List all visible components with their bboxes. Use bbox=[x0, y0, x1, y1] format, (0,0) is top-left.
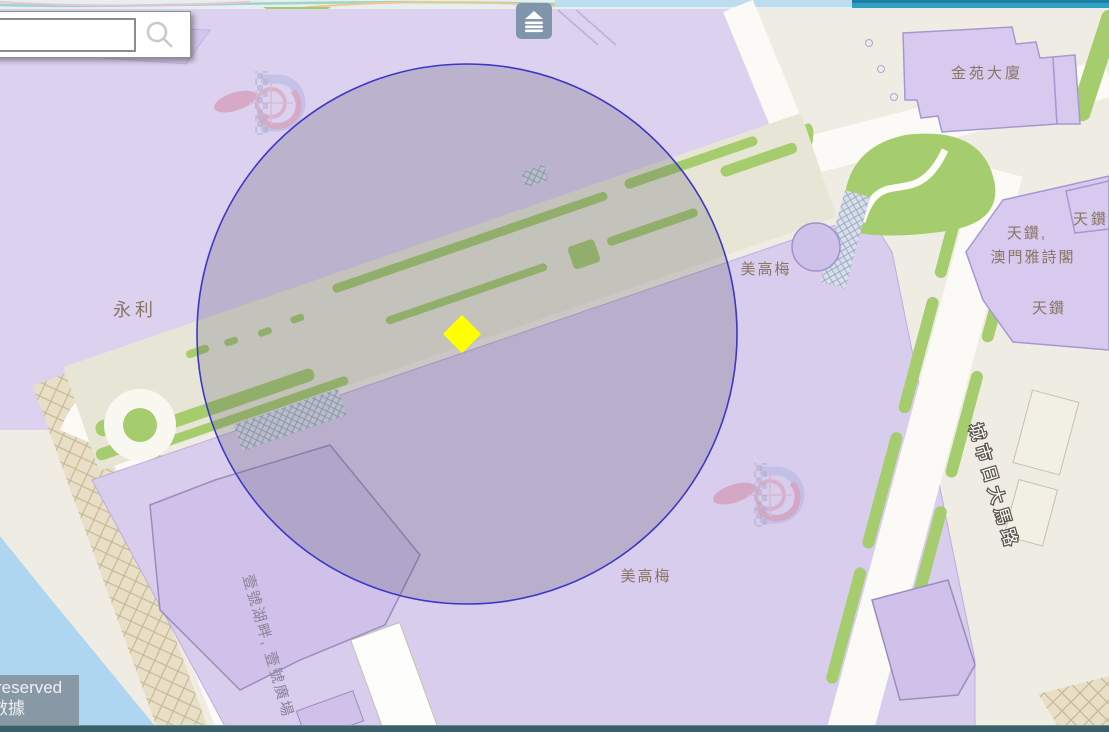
layers-eject-icon bbox=[522, 9, 546, 33]
plaza-green bbox=[123, 408, 157, 442]
label-mgm-north: 美高梅 bbox=[740, 261, 791, 278]
attribution-box: reserved 數據 bbox=[0, 675, 79, 726]
search-panel bbox=[0, 11, 191, 58]
layers-button[interactable] bbox=[516, 3, 552, 39]
search-input[interactable] bbox=[0, 18, 136, 52]
label-wynn: 永利 bbox=[113, 300, 157, 320]
attribution-line2: 數據 bbox=[0, 698, 79, 719]
magnifier-icon bbox=[145, 20, 175, 50]
map-canvas[interactable]: 永利 美高梅 美高梅 金苑大廈 天鑽 天鑽, 澳門雅詩閣 天鑽 城市日大馬路 壹… bbox=[0, 0, 1109, 732]
teal-band-edge bbox=[852, 0, 1109, 3]
map-app-window: 永利 美高梅 美高梅 金苑大廈 天鑽 天鑽, 澳門雅詩閣 天鑽 城市日大馬路 壹… bbox=[0, 0, 1109, 732]
label-ascott: 澳門雅詩閣 bbox=[990, 249, 1075, 266]
tree-dot bbox=[866, 40, 873, 47]
label-sky-oasis-ne: 天鑽 bbox=[1073, 211, 1109, 228]
roundabout bbox=[792, 223, 840, 271]
search-button[interactable] bbox=[138, 14, 182, 55]
tree-dot bbox=[891, 94, 898, 101]
tree-dot bbox=[878, 66, 885, 73]
label-sky-oasis-s: 天鑽 bbox=[1032, 300, 1066, 317]
label-sky-oasis: 天鑽, bbox=[1007, 225, 1047, 242]
bottom-bar bbox=[0, 725, 1109, 732]
attribution-line1: reserved bbox=[0, 677, 79, 698]
building-wing bbox=[1053, 55, 1080, 124]
label-golden-garden: 金苑大廈 bbox=[951, 64, 1023, 82]
label-mgm-south: 美高梅 bbox=[620, 568, 671, 585]
light-blue-band bbox=[555, 0, 860, 7]
